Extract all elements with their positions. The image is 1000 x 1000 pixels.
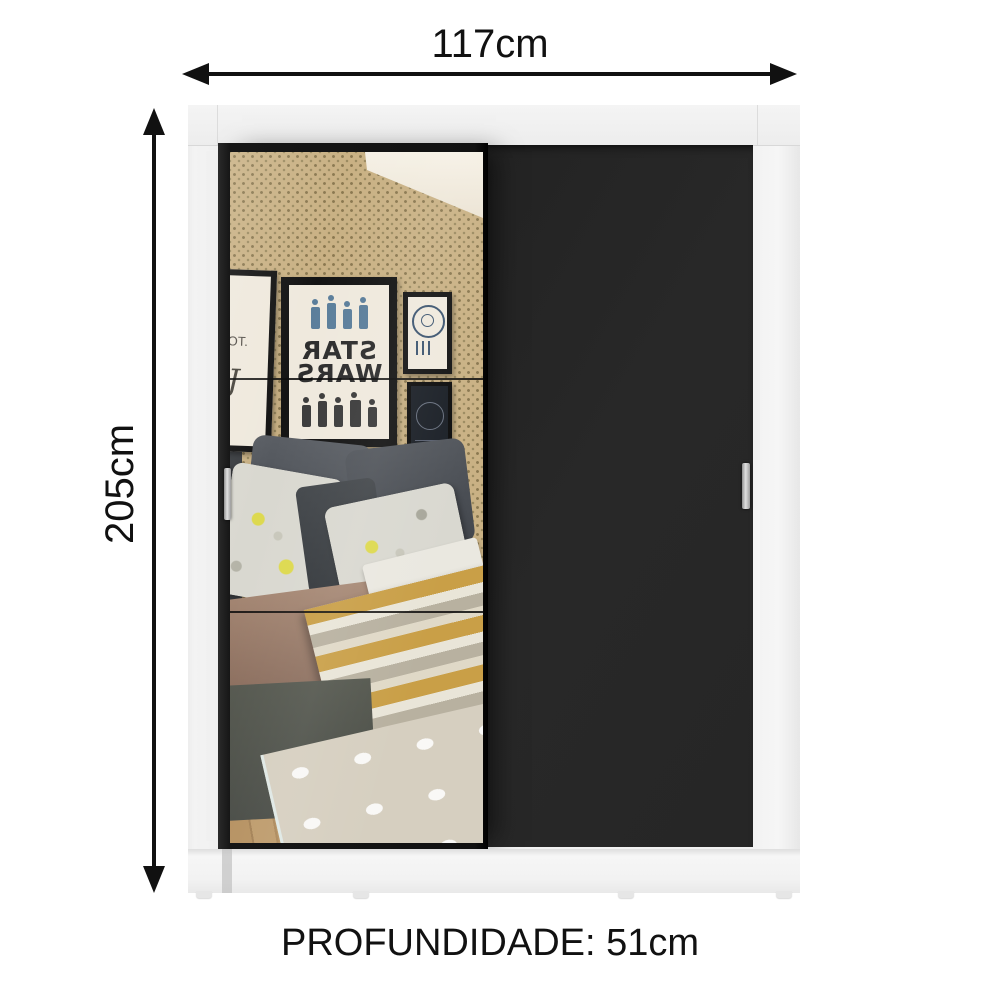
wardrobe: OT. J STAR WARS xyxy=(188,105,800,893)
depth-dimension-label: PROFUNDIDADE: 51cm xyxy=(160,922,820,965)
cabinet-seam xyxy=(217,105,218,145)
base-shadow xyxy=(222,849,232,893)
arrow-right-icon xyxy=(770,63,797,85)
mirror-surface: OT. J STAR WARS xyxy=(230,152,483,843)
wardrobe-top-panel xyxy=(188,105,800,146)
wardrobe-foot xyxy=(196,891,212,898)
width-dimension-label: 117cm xyxy=(182,22,798,67)
black-door-handle xyxy=(742,463,750,509)
wardrobe-foot xyxy=(776,891,792,898)
height-dimension-label: 205cm xyxy=(98,399,142,569)
black-sliding-door xyxy=(488,145,753,847)
cabinet-seam xyxy=(757,105,758,145)
wardrobe-foot xyxy=(618,891,634,898)
mirror-sheen xyxy=(230,152,483,843)
product-dimension-diagram: 117cm 205cm OT. J xyxy=(0,0,1000,1000)
mirror-sliding-door: OT. J STAR WARS xyxy=(218,143,488,849)
arrow-shaft xyxy=(152,131,156,869)
arrow-down-icon xyxy=(143,866,165,893)
wardrobe-base-panel xyxy=(188,849,800,893)
wardrobe-foot xyxy=(353,891,369,898)
mirror-door-handle xyxy=(224,468,231,520)
arrow-shaft xyxy=(205,72,775,76)
